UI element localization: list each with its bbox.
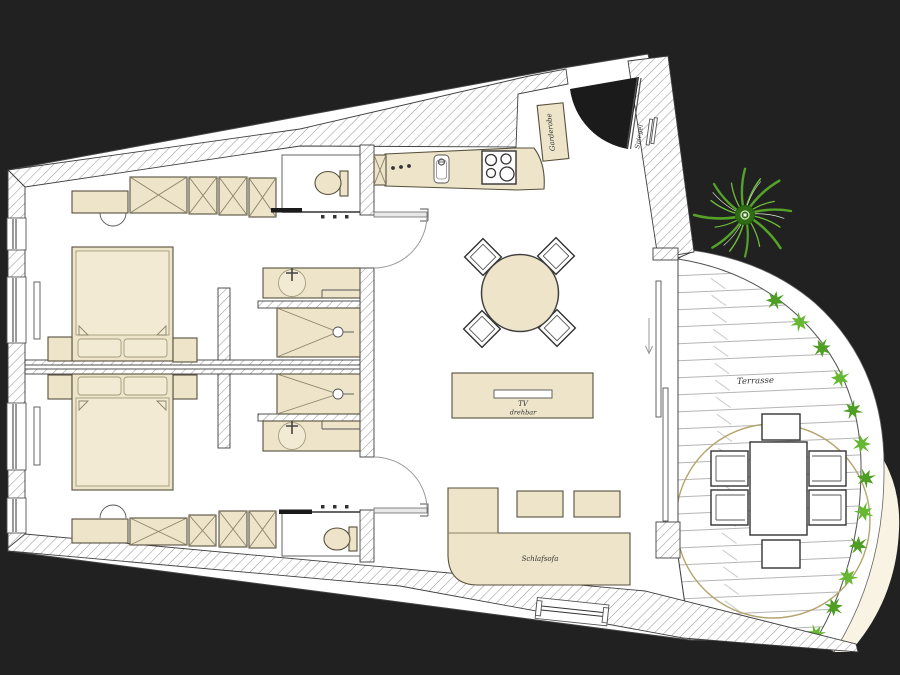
shower1-partition (258, 301, 360, 308)
toilet (324, 527, 357, 551)
sofa-area: Schlafsofa (448, 488, 630, 585)
nightstand (48, 375, 72, 399)
ottoman (517, 491, 563, 517)
bathroom-2 (263, 374, 360, 451)
drain (333, 327, 343, 337)
sliding-panel (656, 281, 661, 417)
terrace-stool-bottom (762, 540, 800, 568)
kitchen-counter (385, 148, 544, 190)
sideboard (72, 191, 128, 213)
round-dining-table (482, 255, 559, 332)
bath-wall (360, 145, 374, 215)
nightstand (48, 337, 72, 361)
hook (345, 505, 349, 509)
nightstand (173, 338, 197, 362)
terrace-chair (809, 490, 846, 525)
sideboard (72, 519, 128, 543)
door-leaf (374, 508, 427, 513)
garderobe-cabinet: Garderobe (537, 103, 569, 161)
hook (333, 505, 337, 509)
tv (494, 390, 552, 398)
radiator (34, 407, 40, 465)
vanity-counter (263, 421, 360, 451)
bedroom-divider-wall (25, 369, 362, 374)
tv-sideboard: TV drehbar (452, 373, 593, 418)
terrace-door-pier-top (653, 248, 678, 260)
terrace-door-pier-bottom (656, 522, 680, 558)
nightstand (173, 375, 197, 399)
window (7, 403, 26, 470)
hook (321, 215, 325, 219)
bedroom2-east-wall (218, 374, 230, 448)
tv-label: TV (518, 400, 529, 408)
wardrobe-row (130, 177, 276, 217)
ottoman (574, 491, 620, 517)
bedroom1-east-wall (218, 288, 230, 360)
double-bed (72, 247, 173, 361)
tv-drehbar-label: drehbar (510, 409, 537, 417)
knob (391, 166, 395, 170)
knob (407, 164, 411, 168)
vanity-counter (263, 268, 360, 298)
pillow (124, 377, 167, 395)
hook (345, 215, 349, 219)
bath-wall (360, 510, 374, 562)
schlafsofa-label: Schlafsofa (522, 555, 559, 563)
shower (277, 308, 360, 357)
terrasse-label: Terrasse (737, 376, 774, 387)
bath-wall (360, 268, 374, 457)
sliding-door (279, 510, 312, 515)
sliding-door (271, 208, 302, 213)
terrace-chair (809, 451, 846, 486)
window (7, 498, 26, 533)
window (7, 218, 26, 250)
radiator (34, 282, 40, 339)
door-leaf (374, 212, 427, 217)
terrace-stool-top (762, 414, 800, 440)
wc-top (271, 155, 360, 219)
hook (333, 215, 337, 219)
pillow (124, 339, 167, 357)
knob (399, 165, 403, 169)
kitchen (374, 148, 544, 190)
window (7, 277, 26, 343)
wc-bottom (279, 505, 360, 556)
shower (277, 374, 360, 414)
floor-plan-svg: Terrasse (0, 0, 900, 675)
cooktop (482, 151, 516, 184)
kitchen-sink (434, 155, 449, 183)
terrace-chair (711, 490, 748, 525)
bathroom-1 (263, 268, 360, 357)
double-bed (72, 374, 173, 490)
floor-plan-stage: Terrasse (0, 0, 900, 675)
drain (333, 389, 343, 399)
terrace-table (750, 442, 807, 535)
toilet (315, 171, 348, 196)
terrace-chair (711, 451, 748, 486)
pillow (78, 377, 121, 395)
shower2-partition (258, 414, 360, 421)
hook (321, 505, 325, 509)
pillow (78, 339, 121, 357)
sliding-panel (663, 388, 668, 521)
